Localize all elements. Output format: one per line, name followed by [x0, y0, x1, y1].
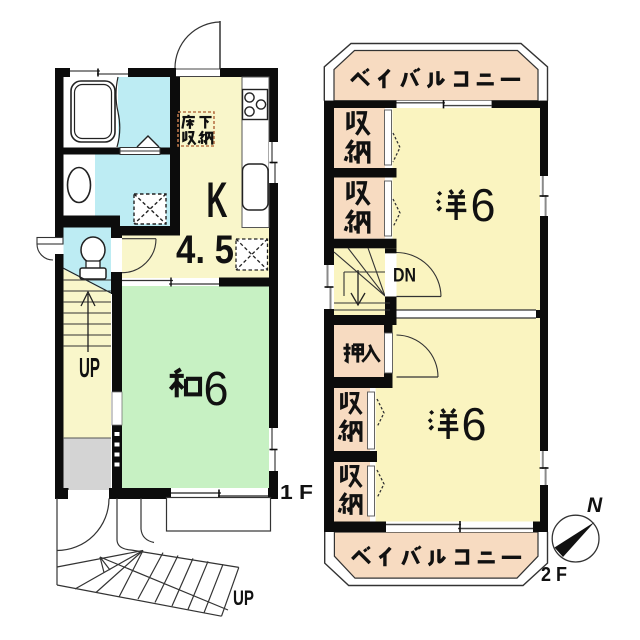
svg-text:6: 6: [462, 398, 487, 450]
svg-text:K: K: [207, 172, 228, 228]
svg-text:2 F: 2 F: [541, 564, 567, 586]
svg-text:6: 6: [204, 363, 229, 416]
svg-text:6: 6: [471, 179, 496, 231]
svg-text:N: N: [587, 494, 603, 517]
svg-text:UP: UP: [233, 587, 254, 610]
svg-text:UP: UP: [79, 352, 100, 383]
svg-text:4. 5: 4. 5: [176, 228, 234, 272]
svg-text:1 F: 1 F: [280, 482, 313, 504]
svg-text:DN: DN: [393, 266, 416, 287]
